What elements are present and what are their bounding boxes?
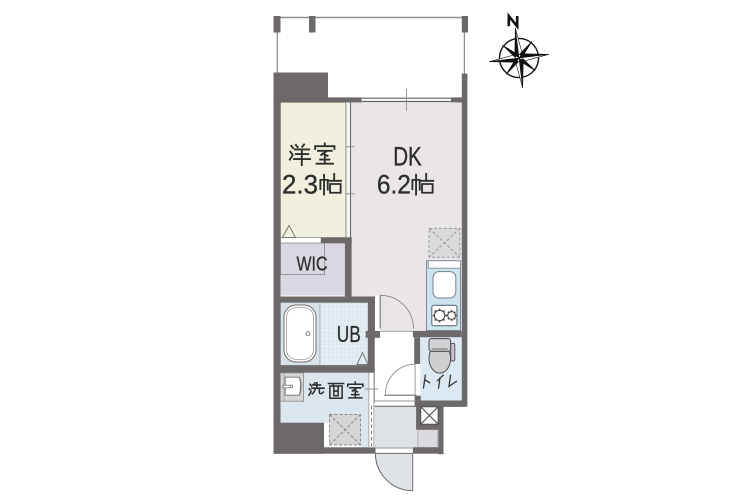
svg-text:WIC: WIC xyxy=(297,252,328,275)
svg-text:DK: DK xyxy=(393,142,422,172)
svg-text:2.3: 2.3 xyxy=(282,170,318,200)
svg-text:6.2: 6.2 xyxy=(377,170,411,200)
svg-text:UB: UB xyxy=(337,321,361,347)
